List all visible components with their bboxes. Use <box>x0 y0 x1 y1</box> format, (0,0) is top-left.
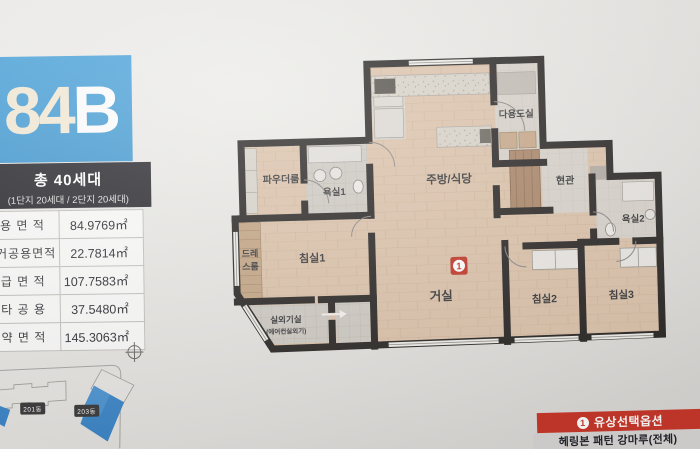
option-disc-icon: 1 <box>577 416 589 428</box>
table-row: 공 급 면 적 107.7583㎡ <box>0 265 144 295</box>
site-plan: 201동 203동 <box>0 355 149 449</box>
brochure-photo: 84B 총 40세대 (1단지 20세대 / 2단지 20세대) 전 용 면 적… <box>0 0 700 449</box>
area-row-label: 주거공용면적 <box>0 239 60 268</box>
room-label-bath1: 욕실1 <box>323 186 347 199</box>
room-label-dress2: 스룸 <box>242 260 259 271</box>
basin <box>645 209 655 219</box>
powder-closet <box>244 148 258 213</box>
rear-balcony-floor <box>335 300 371 344</box>
island-sink <box>480 129 491 143</box>
unit-type-number: 84 <box>4 73 74 149</box>
area-row-value: 37.5480㎡ <box>60 293 144 322</box>
area-table: 전 용 면 적 84.9769㎡ 주거공용면적 22.7814㎡ 공 급 면 적… <box>0 209 145 352</box>
total-units-text: 총 40세대 <box>0 168 151 191</box>
cooktop <box>374 78 395 94</box>
entrance-wardrobe <box>509 149 541 208</box>
toilet <box>353 180 363 193</box>
floor-plan: 1 주방/식당 다용도실 현관 욕실2 파우더룸 욕실1 드레 스룸 침실1 거… <box>220 42 679 384</box>
area-row-label: 기 타 공 용 <box>0 295 61 324</box>
bathtub2 <box>622 181 654 201</box>
option-badge: 1 <box>450 257 467 275</box>
building-label-201: 201동 <box>20 402 45 414</box>
area-row-label: 공 급 면 적 <box>0 267 60 296</box>
basin <box>314 169 326 181</box>
floor-plan-drawing: 1 주방/식당 다용도실 현관 욕실2 파우더룸 욕실1 드레 스룸 침실1 거… <box>220 42 679 384</box>
room-label-bath2: 욕실2 <box>622 213 645 226</box>
toilet <box>605 223 615 236</box>
area-row-value: 107.7583㎡ <box>60 265 144 294</box>
room-label-bed1: 침실1 <box>299 250 326 265</box>
unit-type-box: 84B <box>0 55 133 163</box>
bathtub1 <box>308 145 361 162</box>
room-label-bed2: 침실2 <box>532 292 558 306</box>
room-label-utility: 다용도실 <box>499 108 535 121</box>
table-row: 기 타 공 용 37.5480㎡ <box>0 293 145 323</box>
units-breakdown-text: (1단지 20세대 / 2단지 20세대) <box>0 191 151 207</box>
area-row-label: 전 용 면 적 <box>0 211 59 240</box>
table-row: 전 용 면 적 84.9769㎡ <box>0 209 143 239</box>
room-label-bed3: 침실3 <box>609 288 635 302</box>
room-label-living: 거실 <box>430 288 453 304</box>
paid-option-subtitle: 헤링본 패턴 강마루(전체) <box>533 429 700 449</box>
total-units-band: 총 40세대 (1단지 20세대 / 2단지 20세대) <box>0 162 151 209</box>
unit-type-label: 84B <box>4 76 120 145</box>
table-row: 주거공용면적 22.7814㎡ <box>0 237 144 267</box>
dryer <box>519 132 536 148</box>
vent-arrow <box>322 314 340 315</box>
room-label-kitchen: 주방/식당 <box>426 171 472 186</box>
room-label-entrance: 현관 <box>556 173 576 187</box>
unit-type-letter: B <box>72 72 119 148</box>
area-row-label: 계 약 면 적 <box>0 323 61 352</box>
option-badge-number: 1 <box>456 261 462 272</box>
paid-option-title: 유상선택옵션 <box>594 412 664 431</box>
area-row-value: 22.7814㎡ <box>59 237 143 266</box>
basin <box>330 167 342 179</box>
room-label-powder: 파우더룸 <box>262 172 299 186</box>
washer <box>500 132 517 148</box>
area-row-value: 84.9769㎡ <box>59 209 143 238</box>
building-label-203: 203동 <box>74 405 99 417</box>
room-label-ac: 실외기실 <box>270 314 302 325</box>
site-building-highlight-small <box>0 406 10 427</box>
room-label-dress1: 드레 <box>242 247 259 258</box>
